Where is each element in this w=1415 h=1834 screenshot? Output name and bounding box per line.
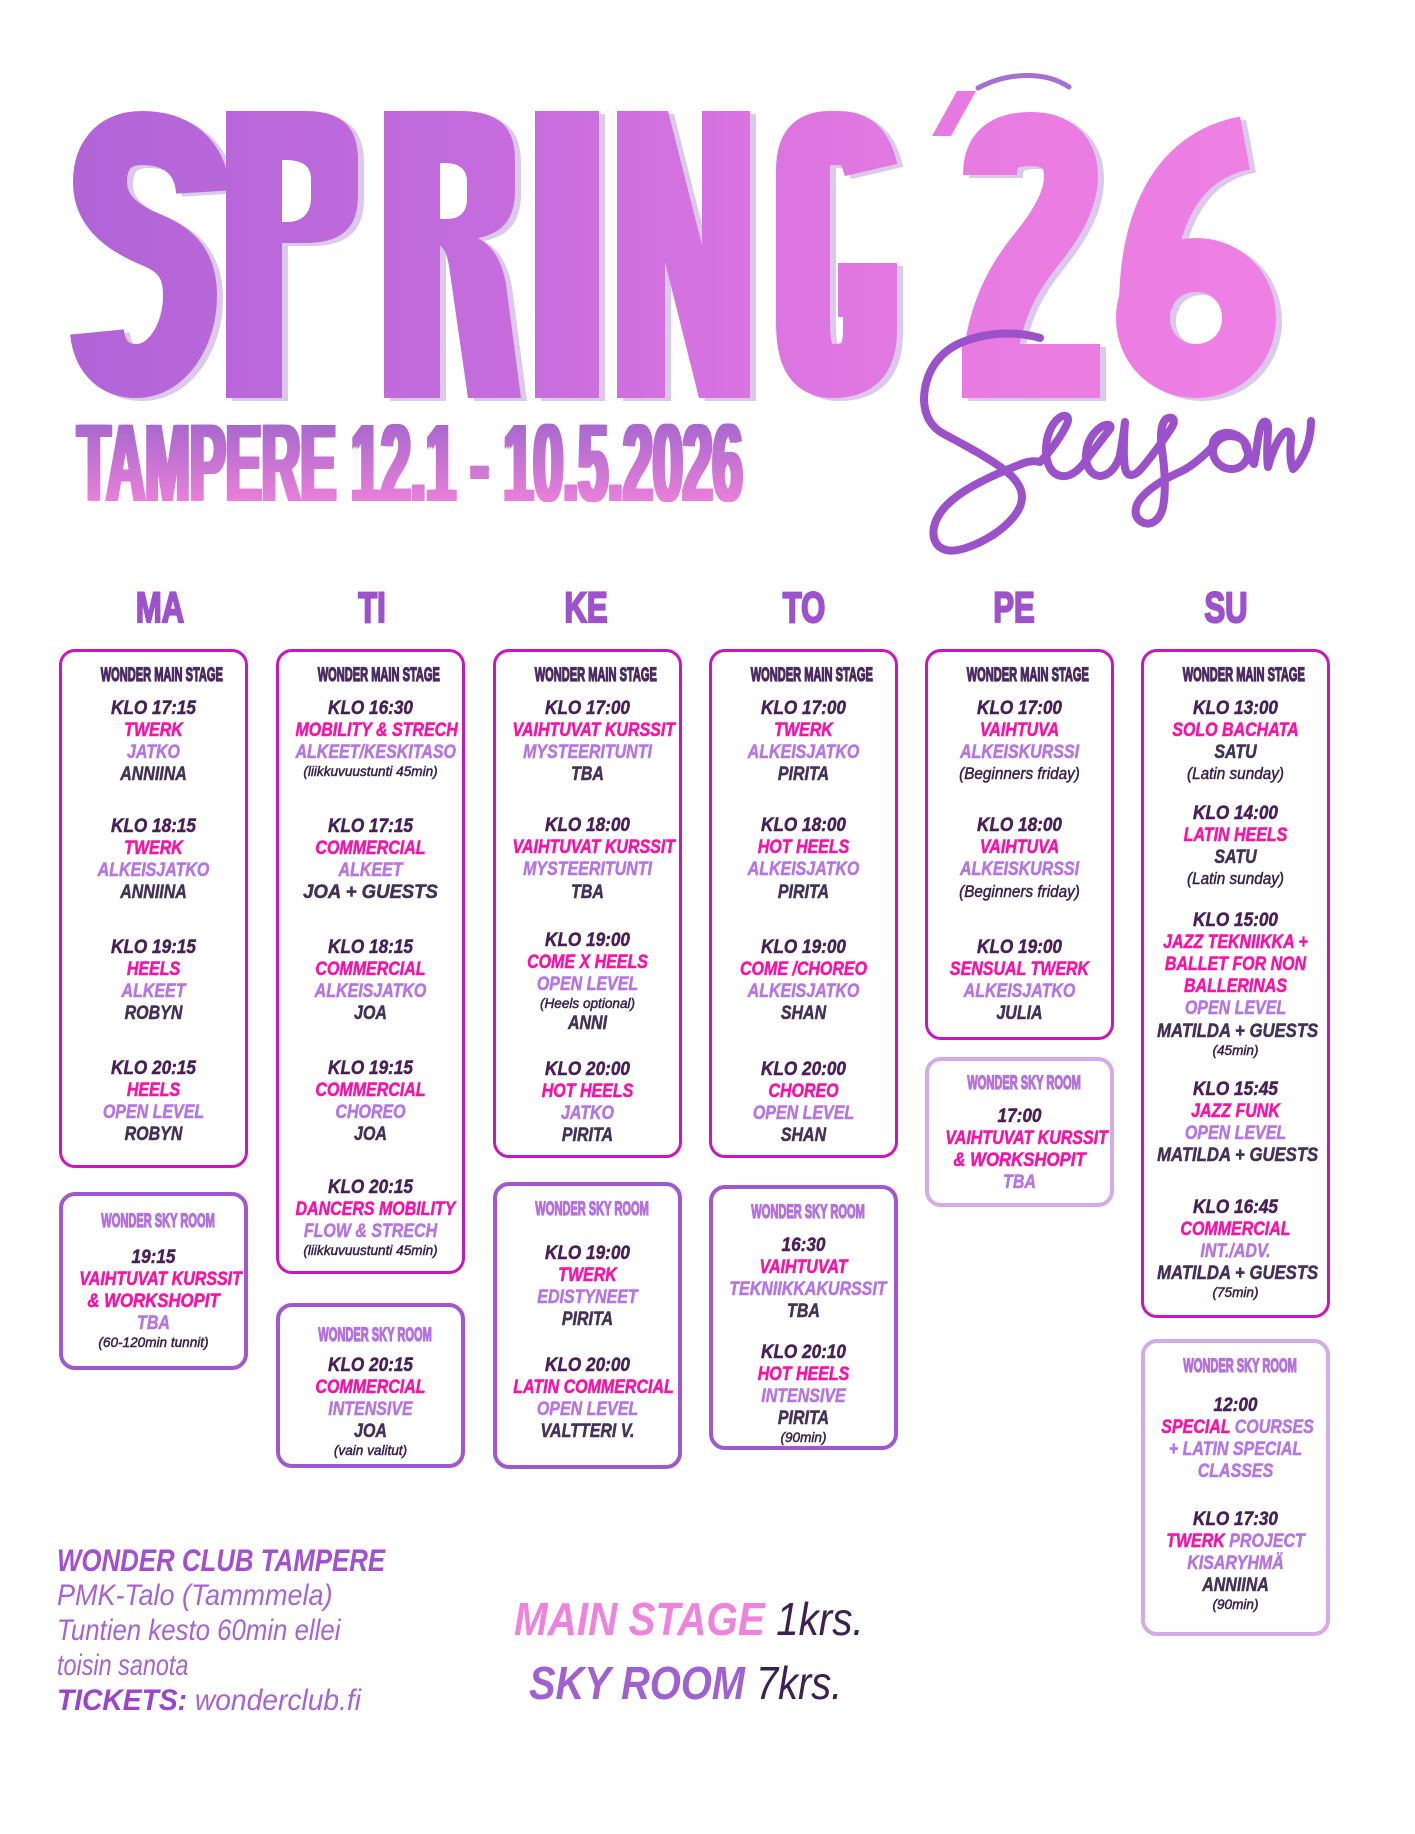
- svg-text:TAMPERE 12.1 - 10.5.2026: TAMPERE 12.1 - 10.5.2026: [80, 402, 745, 525]
